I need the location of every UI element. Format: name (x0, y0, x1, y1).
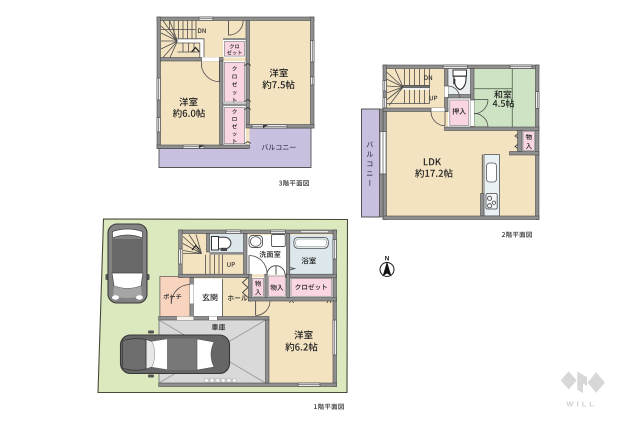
svg-text:WILL: WILL (567, 399, 597, 408)
svg-text:N: N (385, 256, 390, 263)
